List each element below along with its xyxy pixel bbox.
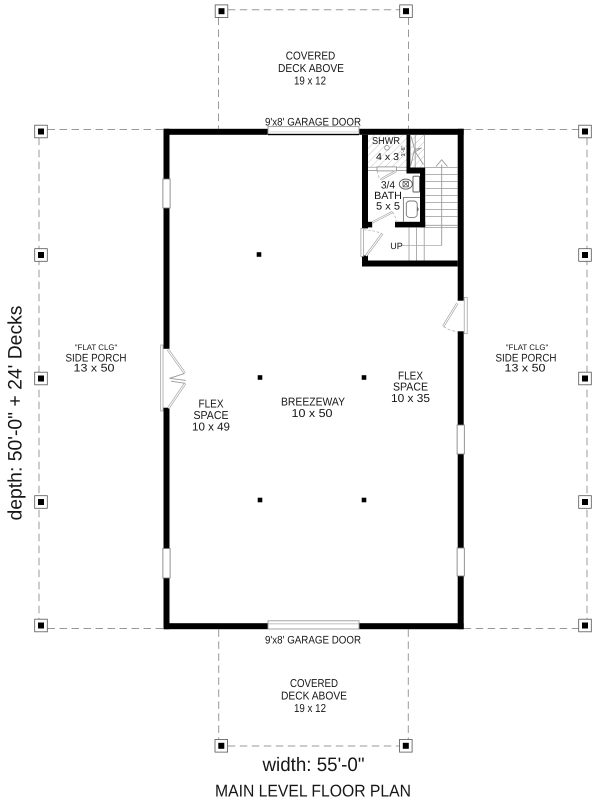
svg-text:COVERED: COVERED	[290, 678, 338, 690]
svg-text:"FLAT CLG": "FLAT CLG"	[506, 343, 549, 352]
svg-text:UP: UP	[390, 241, 403, 251]
svg-text:width: 55'-0": width: 55'-0"	[262, 754, 365, 776]
svg-text:4 x 3: 4 x 3	[376, 152, 399, 163]
svg-text:BREEZEWAY: BREEZEWAY	[281, 397, 345, 409]
svg-text:5 x 5: 5 x 5	[376, 200, 400, 212]
svg-text:9'x8' GARAGE DOOR: 9'x8' GARAGE DOOR	[265, 116, 361, 128]
svg-text:19 x 12: 19 x 12	[294, 76, 326, 88]
svg-text:13 x 50: 13 x 50	[505, 362, 546, 374]
svg-text:10 x 49: 10 x 49	[192, 422, 230, 434]
svg-text:10 x 35: 10 x 35	[391, 393, 430, 405]
svg-text:SPACE: SPACE	[393, 382, 428, 394]
svg-text:"FLAT CLG": "FLAT CLG"	[75, 343, 118, 352]
svg-text:3'-6": 3'-6"	[401, 145, 407, 156]
svg-text:SHWR: SHWR	[372, 136, 400, 147]
svg-text:19 x 12: 19 x 12	[294, 703, 326, 715]
svg-text:COVERED: COVERED	[286, 51, 335, 63]
svg-text:SPACE: SPACE	[194, 410, 229, 422]
svg-text:MAIN LEVEL FLOOR PLAN: MAIN LEVEL FLOOR PLAN	[215, 782, 411, 801]
svg-text:depth: 50'-0" + 24' Decks: depth: 50'-0" + 24' Decks	[5, 305, 27, 520]
svg-text:10 x 50: 10 x 50	[292, 408, 333, 420]
svg-text:DECK ABOVE: DECK ABOVE	[278, 63, 344, 75]
svg-text:FLEX: FLEX	[199, 399, 224, 411]
svg-text:DECK ABOVE: DECK ABOVE	[281, 691, 347, 703]
svg-text:13 x 50: 13 x 50	[74, 362, 115, 374]
svg-text:9'x8' GARAGE DOOR: 9'x8' GARAGE DOOR	[265, 635, 361, 647]
